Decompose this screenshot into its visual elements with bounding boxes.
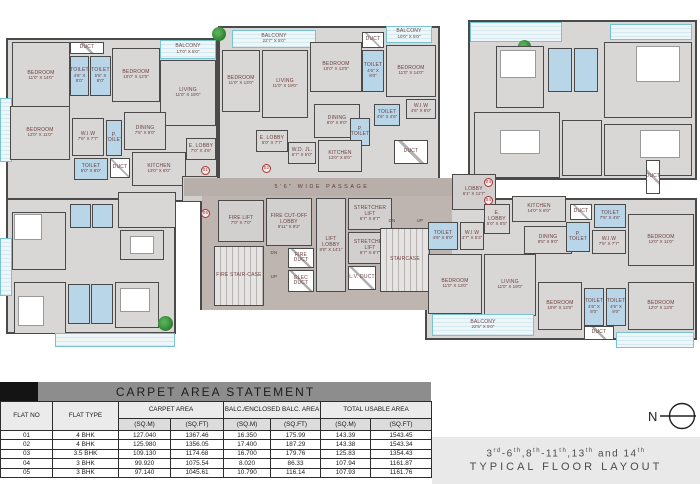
e-lobby: E. LOBBY7'0" X 4'6" xyxy=(186,138,216,160)
bedroom: BEDROOM11'0" X 13'0" xyxy=(222,50,260,112)
cell-r2-c7: 1354.43 xyxy=(371,449,432,458)
w-d-jl: W.D. JL.5'7" X 5'0" xyxy=(288,142,316,164)
flat-marker-02: 02 xyxy=(262,164,271,173)
w-i-w: W.I.W4'6" X 8'0" xyxy=(406,99,436,119)
sub-header-2: (SQ.M) xyxy=(224,419,271,431)
toilet xyxy=(70,204,91,228)
toilet: TOILET4'6" X 8'0" xyxy=(584,288,604,326)
cell-r4-c3: 1045.61 xyxy=(171,468,224,477)
balcony xyxy=(55,333,175,347)
sub-header-5: (SQ.FT) xyxy=(371,419,432,431)
duct: DUCT xyxy=(362,32,384,48)
w-i-w: W.I.W7'5" X 7'7" xyxy=(592,230,626,254)
fire-cut-off-lobby: FIRE CUT-OFF LOBBY9'11" X 8'2" xyxy=(266,198,312,246)
cell-r0-c7: 1543.45 xyxy=(371,431,432,440)
dining: DINING8'5" X 9'0" xyxy=(524,226,572,254)
toilet: TOILET4'6" X 8'0" xyxy=(70,56,89,96)
cell-r2-c5: 179.76 xyxy=(271,449,321,458)
cell-r3-c3: 1075.54 xyxy=(171,459,224,468)
bedroom: BEDROOM12'0" X 13'0" xyxy=(628,282,694,330)
cell-r0-c2: 127.040 xyxy=(119,431,171,440)
cell-r3-c2: 99.920 xyxy=(119,459,171,468)
balcony xyxy=(470,22,562,42)
bedroom: BEDROOM12'0" X 11'0" xyxy=(10,106,70,160)
dining: DINING7'5" X 9'0" xyxy=(124,112,166,150)
kitchen: KITCHEN13'0" X 8'0" xyxy=(318,140,362,172)
balcony xyxy=(616,332,694,348)
cell-r0-c3: 1367.46 xyxy=(171,431,224,440)
furn xyxy=(14,214,42,240)
duct: DUCT xyxy=(646,160,660,194)
cell-r0-c4: 16.350 xyxy=(224,431,271,440)
cell-r4-c5: 116.14 xyxy=(271,468,321,477)
fire-duct: FIRE DUCT xyxy=(288,248,314,268)
cell-r3-c6: 107.94 xyxy=(321,459,371,468)
passage: 5'6" WIDE PASSAGE xyxy=(184,178,460,196)
cell-r2-c1: 3.5 BHK xyxy=(53,449,119,458)
living: LIVING11'0" X 19'0" xyxy=(262,50,308,118)
living: LIVING11'0" X 19'0" xyxy=(160,60,216,126)
cell-r1-c3: 1356.05 xyxy=(171,440,224,449)
floor-plan-sheet: BEDROOM11'0" X 14'0"DUCTTOILET4'6" X 8'0… xyxy=(0,0,700,484)
table-row-flat-04: 043 BHK99.9201075.548.02086.33107.941161… xyxy=(1,459,432,468)
cell-r4-c7: 1161.76 xyxy=(371,468,432,477)
bedroom: BEDROOM10'0" X 13'0" xyxy=(310,42,362,92)
dn: DN xyxy=(384,216,400,226)
toilet xyxy=(92,204,113,228)
toilet xyxy=(574,48,598,92)
balcony: BALCONY22'5" X 5'0" xyxy=(432,314,534,336)
duct: DUCT xyxy=(110,158,130,178)
floor-layout-caption: 3rd-6th,8th-11th,13th and 14th TYPICAL F… xyxy=(432,437,700,484)
cell-r1-c7: 1543.34 xyxy=(371,440,432,449)
cell-r2-c4: 16.700 xyxy=(224,449,271,458)
furn xyxy=(500,50,536,78)
cell-r1-c1: 4 BHK xyxy=(53,440,119,449)
cell-r1-c4: 17.400 xyxy=(224,440,271,449)
furn xyxy=(120,288,150,312)
cell-r2-c2: 109.130 xyxy=(119,449,171,458)
cell-r0-c5: 175.99 xyxy=(271,431,321,440)
cell-r1-c0: 02 xyxy=(1,440,53,449)
floor-plan: BEDROOM11'0" X 14'0"DUCTTOILET4'6" X 8'0… xyxy=(0,0,700,378)
toilet xyxy=(91,284,113,324)
col-header-0: FLAT NO xyxy=(1,402,53,431)
carpet-area-title-band: CARPET AREA STATEMENT xyxy=(0,382,431,401)
living: LIVING11'0" X 19'0" xyxy=(484,254,536,316)
table-row-flat-05: 053 BHK97.1401045.6110.790116.14107.9311… xyxy=(1,468,432,477)
cell-r2-c0: 03 xyxy=(1,449,53,458)
bedroom: BEDROOM10'0" X 12'0" xyxy=(112,48,160,102)
plant-icon xyxy=(158,316,173,331)
col-header-4: TOTAL USABLE AREA xyxy=(321,402,432,419)
table-row-flat-02: 024 BHK125.9801356.0517.400187.29143.381… xyxy=(1,440,432,449)
duct: DUCT xyxy=(70,42,104,54)
cell-r3-c5: 86.33 xyxy=(271,459,321,468)
cell-r2-c6: 125.83 xyxy=(321,449,371,458)
up: UP xyxy=(266,272,282,282)
fire-stair-case: FIRE STAIR-CASE xyxy=(214,246,264,306)
sub-header-3: (SQ.FT) xyxy=(271,419,321,431)
balcony: BALCONY22'7" X 5'0" xyxy=(232,30,316,48)
toilet: TOILET7'5" X 4'6" xyxy=(594,204,626,228)
title-left-notch xyxy=(0,382,38,401)
w-i-w: W.I.W4'7" X 5'3" xyxy=(460,222,484,250)
carpet-area-title: CARPET AREA STATEMENT xyxy=(116,385,315,399)
cell-r3-c4: 8.020 xyxy=(224,459,271,468)
cell-r4-c0: 05 xyxy=(1,468,53,477)
col-header-2: CARPET AREA xyxy=(119,402,224,419)
north-letter: N xyxy=(648,409,657,424)
sub-header-1: (SQ.FT) xyxy=(171,419,224,431)
flat-marker-01: 01 xyxy=(201,166,210,175)
flat-marker-05: 05 xyxy=(201,209,210,218)
l-v-duct: L.V. DUCT xyxy=(348,266,376,290)
cell-r2-c3: 1174.68 xyxy=(171,449,224,458)
up: UP xyxy=(412,216,428,226)
e-lobby: E. LOBBY5'0" X 8'5" xyxy=(484,204,510,234)
cell-r3-c7: 1161.87 xyxy=(371,459,432,468)
duct: DUCT xyxy=(570,204,592,220)
col-header-3: BALC./ENCLOSED BALC. AREA xyxy=(224,402,321,419)
sub-header-0: (SQ.M) xyxy=(119,419,171,431)
cell-r3-c0: 04 xyxy=(1,459,53,468)
carpet-area-statement: CARPET AREA STATEMENT FLAT NOFLAT TYPECA… xyxy=(0,382,431,478)
toilet: TOILET5'0" X 8'0" xyxy=(74,158,108,180)
furn xyxy=(636,46,680,82)
duct: DUCT xyxy=(584,326,614,340)
cell-r4-c6: 107.93 xyxy=(321,468,371,477)
cell-r4-c2: 97.140 xyxy=(119,468,171,477)
toilet: TOILET5'6" X 8'0" xyxy=(90,56,111,96)
toilet: TOILET4'6" X 8'0" xyxy=(428,222,458,250)
duct: DUCT xyxy=(394,140,428,164)
staircase: STAIRCASE xyxy=(380,228,430,292)
cell-r4-c4: 10.790 xyxy=(224,468,271,477)
carpet-area-table: FLAT NOFLAT TYPECARPET AREABALC./ENCLOSE… xyxy=(0,401,432,478)
furn xyxy=(130,236,154,254)
bedroom: BEDROOM11'0" X 13'0" xyxy=(428,254,482,314)
balcony: BALCONY10'0" X 5'0" xyxy=(386,26,432,43)
cell-r1-c2: 125.980 xyxy=(119,440,171,449)
cell-r0-c1: 4 BHK xyxy=(53,431,119,440)
e-lobby: E. LOBBY5'0" X 7'7" xyxy=(256,130,288,152)
lift-lobby: LIFT LOBBY8'0" X 14'1" xyxy=(316,198,346,292)
bedroom: BEDROOM12'0" X 11'0" xyxy=(628,214,694,266)
cell-r1-c6: 143.38 xyxy=(321,440,371,449)
bedroom: BEDROOM11'0" X 14'0" xyxy=(386,45,436,97)
toilet: TOILET4'6" X 8'0" xyxy=(362,50,384,92)
flat-marker-03: 03 xyxy=(484,178,493,187)
table-row-flat-03: 033.5 BHK109.1301174.6816.700179.76125.8… xyxy=(1,449,432,458)
furn xyxy=(500,130,540,154)
north-compass-icon: N xyxy=(646,398,698,434)
bedroom: BEDROOM10'9" X 13'0" xyxy=(538,282,582,330)
bedroom: BEDROOM11'0" X 14'0" xyxy=(12,42,70,110)
flat-marker-04: 04 xyxy=(484,196,493,205)
room xyxy=(118,192,176,228)
balcony: BALCONY17'0" X 5'0" xyxy=(160,40,216,59)
p-toilet: P. TOILET xyxy=(106,120,122,156)
toilet: TOILET4'6" X 8'0" xyxy=(606,288,626,326)
kitchen: KITCHEN14'0" X 8'0" xyxy=(512,196,566,222)
kitchen: KITCHEN13'0" X 8'0" xyxy=(132,152,186,186)
plant-icon xyxy=(212,27,226,41)
w-i-w: W.I.W7'5" X 7'7" xyxy=(72,118,104,156)
col-header-1: FLAT TYPE xyxy=(53,402,119,431)
toilet xyxy=(68,284,90,324)
fire-lift: FIRE LIFT7'0" X 7'0" xyxy=(218,200,264,242)
dn: DN xyxy=(266,248,282,258)
table-row-flat-01: 014 BHK127.0401367.4616.350175.99143.391… xyxy=(1,431,432,440)
balcony xyxy=(610,24,692,40)
furn xyxy=(18,296,44,326)
p-toilet: P. TOILET xyxy=(566,222,590,252)
cell-r0-c6: 143.39 xyxy=(321,431,371,440)
furn xyxy=(640,130,680,158)
floor-range-text: 3rd-6th,8th-11th,13th and 14th xyxy=(486,448,645,459)
cell-r1-c5: 187.29 xyxy=(271,440,321,449)
toilet xyxy=(548,48,572,92)
typical-floor-layout-text: TYPICAL FLOOR LAYOUT xyxy=(470,461,663,473)
balcony xyxy=(0,238,12,296)
cell-r0-c0: 01 xyxy=(1,431,53,440)
sub-header-4: (SQ.M) xyxy=(321,419,371,431)
cell-r4-c1: 3 BHK xyxy=(53,468,119,477)
cell-r3-c1: 3 BHK xyxy=(53,459,119,468)
elec-duct: ELEC DUCT xyxy=(288,270,314,292)
toilet: TOILET4'6" X 4'6" xyxy=(374,104,400,126)
room xyxy=(562,120,602,176)
